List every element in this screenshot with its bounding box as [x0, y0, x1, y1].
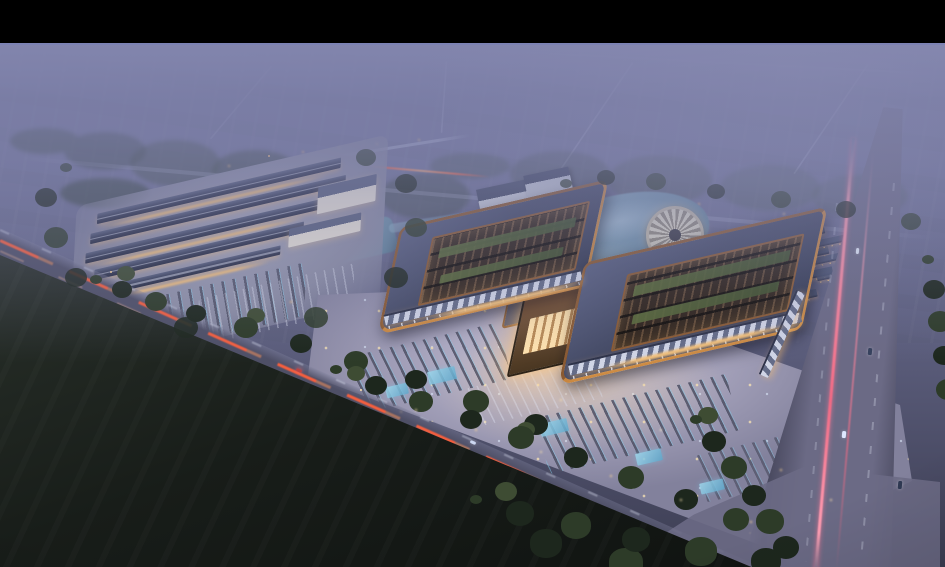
car: [868, 348, 872, 355]
trees-road-east-edge: [922, 255, 934, 264]
aerial-scene: [0, 43, 945, 567]
trees-pond-shore: [560, 179, 572, 188]
trees-along-avenue: [90, 275, 102, 284]
trees-plaza-edge: [330, 365, 342, 374]
trees-left-complex-ring: [60, 163, 72, 172]
car: [856, 248, 860, 254]
trees-road-west-edge: [690, 415, 702, 424]
car: [898, 481, 903, 489]
architectural-rendering: [0, 0, 945, 567]
trees-foreground: [470, 495, 482, 504]
left-complex-lamps: [110, 271, 112, 273]
letterbox-bar: [0, 0, 945, 43]
car: [842, 431, 846, 438]
plaza-lamps: [360, 389, 362, 391]
